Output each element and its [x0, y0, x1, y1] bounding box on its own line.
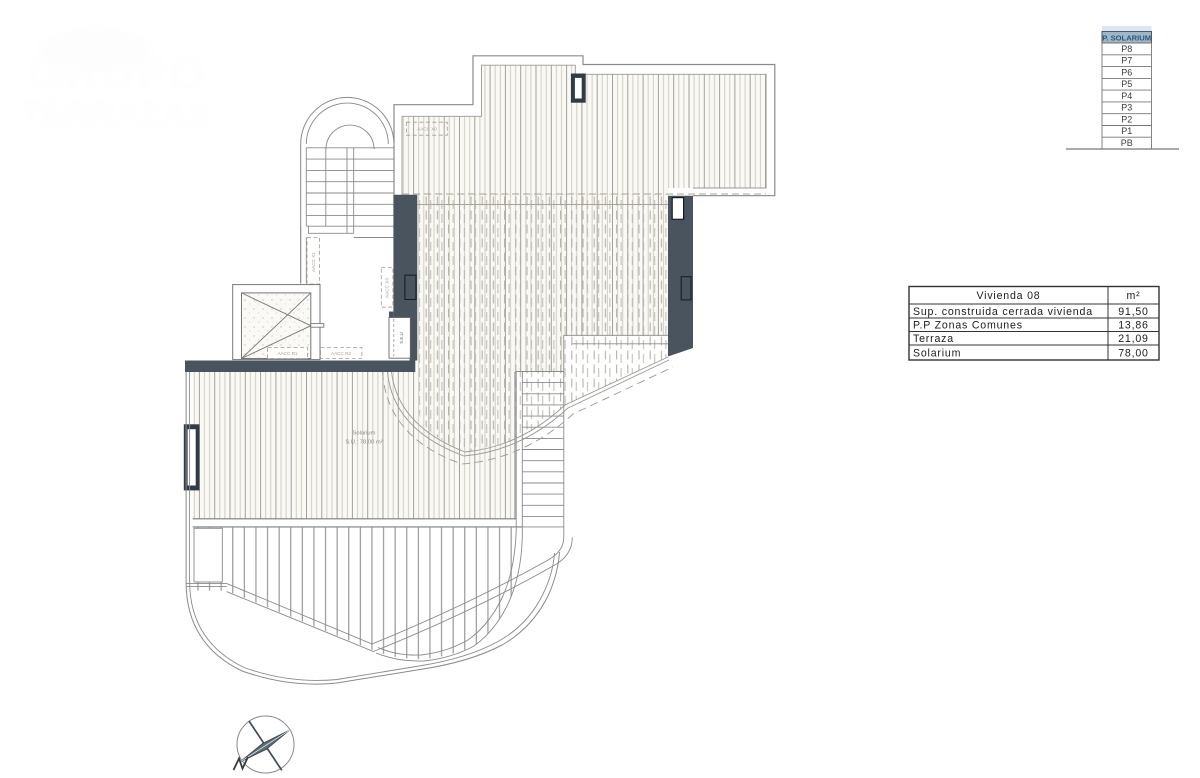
- svg-text:AACC X0: AACC X0: [417, 127, 437, 132]
- svg-text:P. SOLARIUM: P. SOLARIUM: [1102, 34, 1151, 43]
- svg-text:P1: P1: [1121, 126, 1132, 136]
- svg-text:P8: P8: [1121, 44, 1132, 54]
- svg-text:P2: P2: [1121, 115, 1132, 125]
- svg-text:P.P Zonas Comunes: P.P Zonas Comunes: [913, 319, 1023, 331]
- svg-text:AACC R2: AACC R2: [331, 351, 351, 356]
- svg-text:PB: PB: [1121, 138, 1133, 148]
- svg-text:S.E.U: S.E.U: [399, 332, 404, 343]
- svg-text:AACC X1: AACC X1: [311, 252, 316, 272]
- svg-text:Solarium: Solarium: [913, 347, 961, 359]
- svg-text:13,86: 13,86: [1118, 319, 1149, 331]
- svg-text:21,09: 21,09: [1118, 333, 1149, 345]
- svg-text:P6: P6: [1121, 67, 1132, 77]
- svg-text:AACC R1: AACC R1: [278, 351, 298, 356]
- svg-text:P5: P5: [1121, 79, 1132, 89]
- svg-text:78,00: 78,00: [1118, 347, 1149, 359]
- svg-text:m²: m²: [1127, 290, 1141, 302]
- svg-text:TERRAZAS: TERRAZAS: [20, 95, 211, 134]
- svg-text:Sup. construida cerrada vivien: Sup. construida cerrada vivienda: [913, 306, 1093, 318]
- svg-text:Solarium: Solarium: [353, 431, 376, 437]
- svg-text:P3: P3: [1121, 103, 1132, 113]
- svg-text:Terraza: Terraza: [913, 333, 954, 345]
- svg-text:Vivienda 08: Vivienda 08: [977, 290, 1041, 302]
- svg-text:AACC X3: AACC X3: [385, 278, 390, 298]
- svg-text:S.U.: 78,00 m²: S.U.: 78,00 m²: [345, 440, 382, 446]
- svg-text:91,50: 91,50: [1118, 306, 1149, 318]
- svg-text:P4: P4: [1121, 91, 1132, 101]
- svg-text:P7: P7: [1121, 56, 1132, 66]
